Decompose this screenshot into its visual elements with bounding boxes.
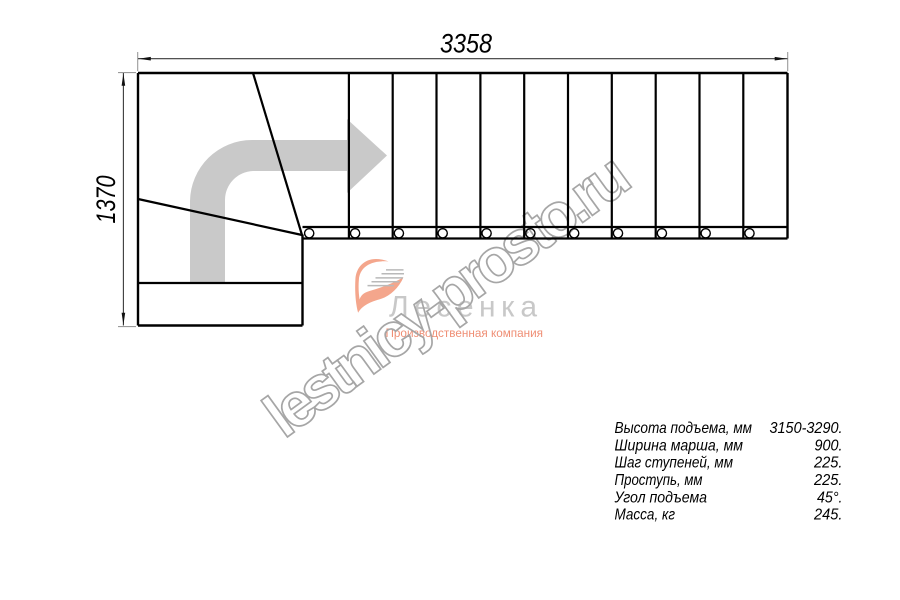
svg-text:245.: 245. — [813, 507, 842, 524]
svg-text:3358: 3358 — [440, 29, 492, 59]
svg-text:Высота подъема, мм: Высота подъема, мм — [615, 420, 753, 437]
svg-text:Шаг ступеней, мм: Шаг ступеней, мм — [615, 455, 734, 472]
svg-text:3150-3290.: 3150-3290. — [770, 420, 843, 437]
svg-text:225.: 225. — [813, 455, 842, 472]
svg-text:Ширина марша, мм: Ширина марша, мм — [615, 437, 744, 454]
svg-text:900.: 900. — [815, 437, 843, 454]
svg-text:Угол подъема: Угол подъема — [614, 489, 707, 506]
svg-text:Масса, кг: Масса, кг — [615, 507, 676, 524]
svg-text:45°.: 45°. — [817, 489, 843, 506]
svg-text:1370: 1370 — [91, 176, 121, 224]
svg-text:225.: 225. — [813, 472, 842, 489]
svg-text:Проступь, мм: Проступь, мм — [615, 472, 703, 489]
